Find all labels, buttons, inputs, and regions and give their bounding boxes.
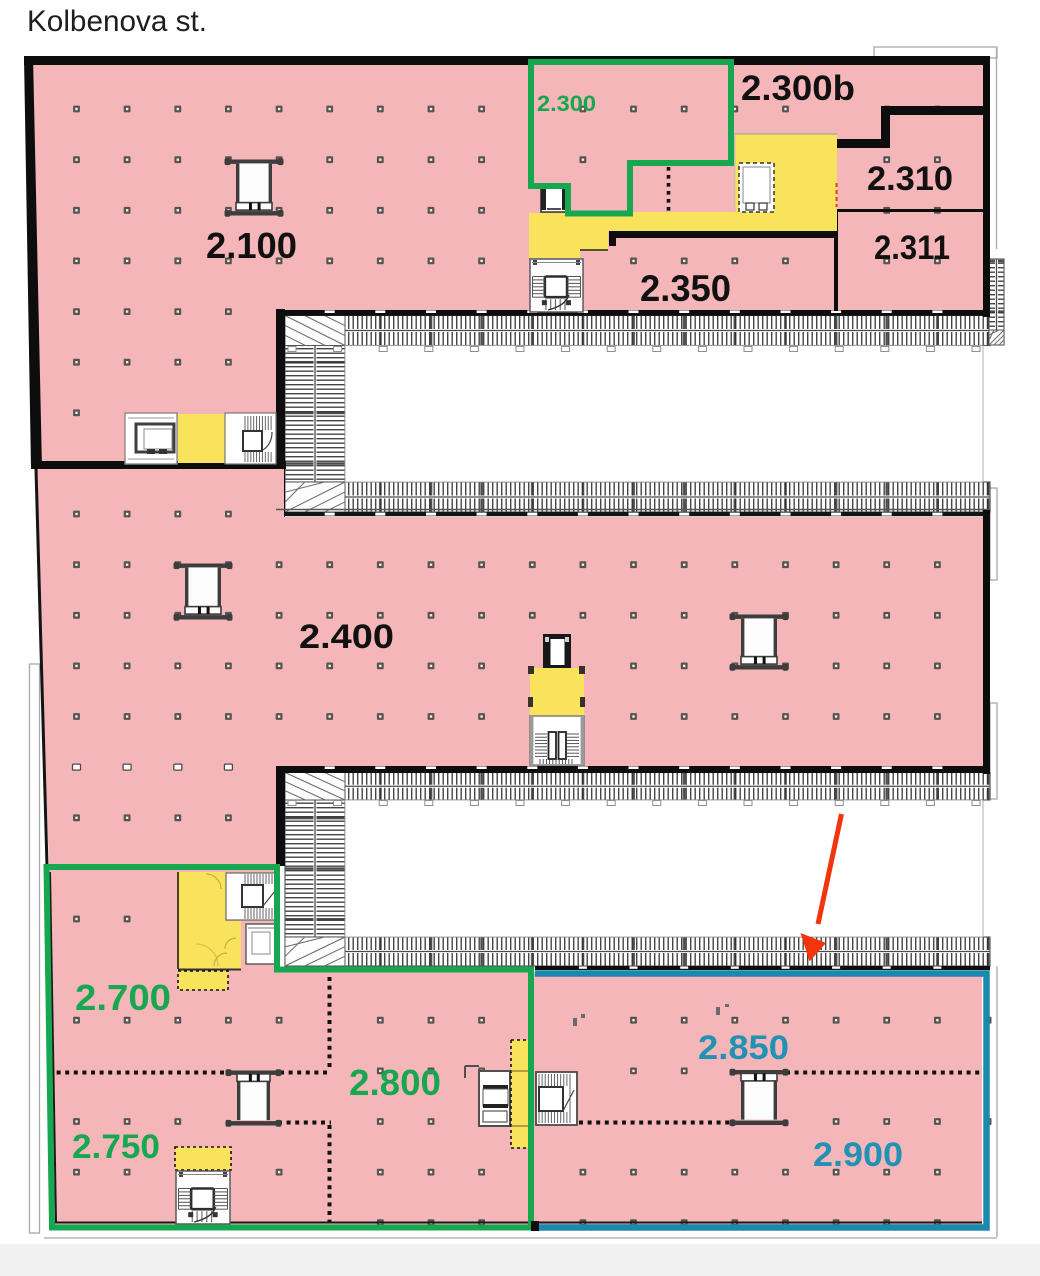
svg-text:2.900: 2.900 <box>813 1136 903 1174</box>
svg-text:2.700: 2.700 <box>75 977 171 1018</box>
svg-text:2.311: 2.311 <box>874 229 950 267</box>
svg-text:2.400: 2.400 <box>299 618 394 656</box>
svg-text:2.800: 2.800 <box>349 1062 441 1103</box>
svg-text:2.300: 2.300 <box>537 91 596 116</box>
svg-text:2.100: 2.100 <box>206 225 297 266</box>
svg-text:2.750: 2.750 <box>72 1128 160 1166</box>
svg-text:2.300b: 2.300b <box>741 69 855 108</box>
svg-text:Kolbenova st.: Kolbenova st. <box>27 5 207 38</box>
svg-text:2.350: 2.350 <box>640 268 731 309</box>
svg-text:2.310: 2.310 <box>867 160 953 198</box>
svg-text:2.850: 2.850 <box>698 1029 789 1067</box>
